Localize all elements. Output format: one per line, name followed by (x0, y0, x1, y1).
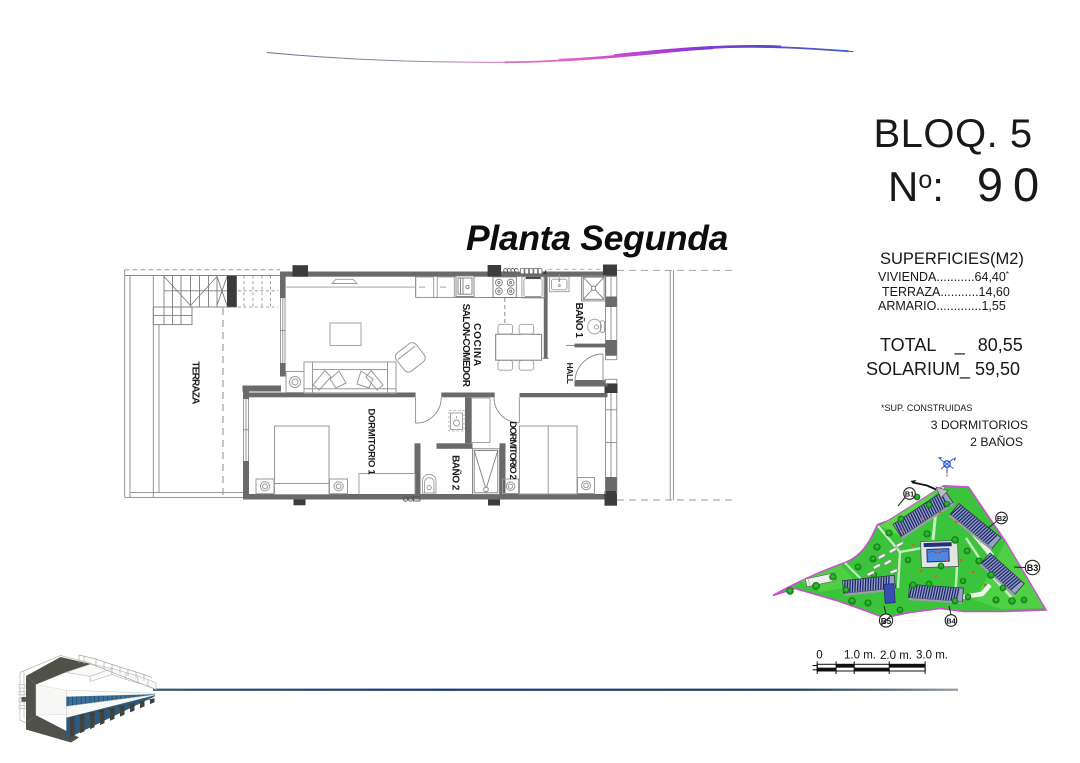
svg-text:HALL: HALL (565, 362, 575, 383)
svg-text:Planta Segunda: Planta Segunda (466, 218, 728, 258)
svg-text:3 DORMITORIOS: 3 DORMITORIOS (931, 418, 1028, 432)
svg-text:TERRAZA...........14,60: TERRAZA...........14,60 (882, 285, 1010, 299)
svg-text:*SUP. CONSTRUIDAS: *SUP. CONSTRUIDAS (881, 403, 972, 413)
svg-text:0: 0 (816, 650, 822, 662)
svg-text:B3: B3 (1027, 563, 1039, 573)
svg-text:2.0 m.: 2.0 m. (880, 650, 912, 662)
svg-text:No:90: No:90 (888, 158, 1049, 211)
svg-text:DORMITORIO 2: DORMITORIO 2 (507, 421, 518, 479)
svg-text:DORMITORIO 1: DORMITORIO 1 (366, 409, 377, 476)
svg-text:B4: B4 (946, 617, 955, 626)
svg-text:B2: B2 (997, 514, 1006, 523)
svg-text:ARMARIO.............1,55: ARMARIO.............1,55 (878, 299, 1006, 313)
svg-text:BAÑO 2: BAÑO 2 (450, 455, 463, 491)
svg-text:TOTAL _ 80,55: TOTAL _ 80,55 (880, 335, 1023, 356)
svg-text:SOLARIUM_ 59,50: SOLARIUM_ 59,50 (866, 359, 1020, 380)
svg-text:2 BAÑOS: 2 BAÑOS (970, 435, 1023, 449)
svg-text:VIVIENDA...........64,40*: VIVIENDA...........64,40* (878, 270, 1009, 284)
svg-text:3.0 m.: 3.0 m. (916, 650, 948, 662)
svg-text:SALON-COMEDOR: SALON-COMEDOR (460, 304, 471, 388)
svg-text:SUPERFICIES(M2): SUPERFICIES(M2) (880, 250, 1024, 268)
svg-text:COCINA: COCINA (471, 323, 482, 367)
svg-text:B1: B1 (905, 490, 914, 499)
svg-text:BLOQ. 5: BLOQ. 5 (873, 112, 1032, 156)
svg-text:TERRAZA: TERRAZA (189, 361, 200, 404)
svg-text:BAÑO 1: BAÑO 1 (573, 303, 586, 339)
svg-text:1.0 m.: 1.0 m. (844, 650, 876, 662)
